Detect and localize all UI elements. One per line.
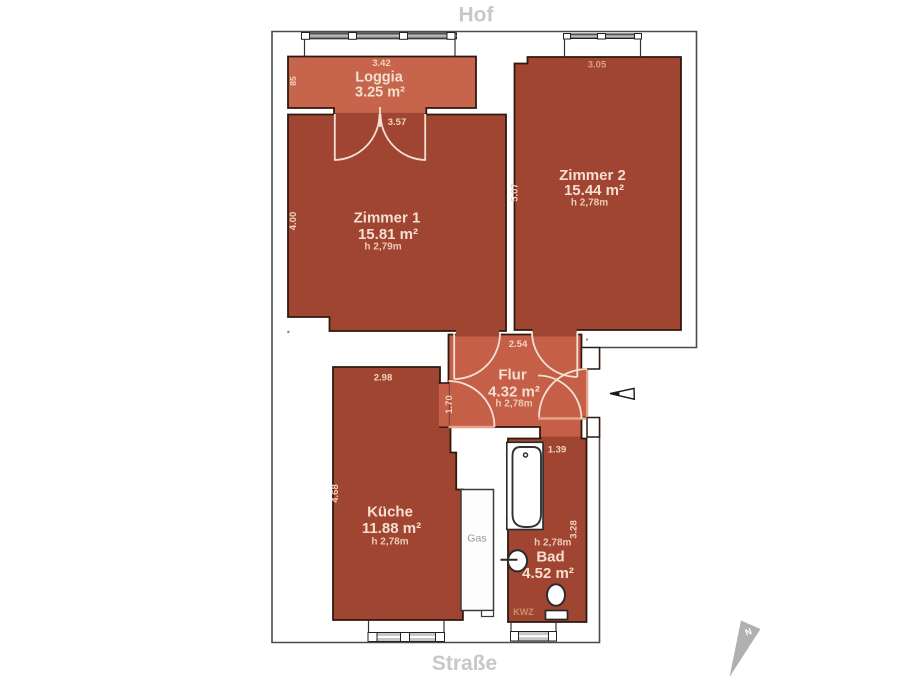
svg-text:2.98: 2.98 [374,373,393,384]
svg-text:15.44 m²: 15.44 m² [564,182,624,199]
svg-text:1.70: 1.70 [444,395,455,414]
svg-text:Gas: Gas [467,533,486,545]
svg-text:h 2,79m: h 2,79m [364,242,401,253]
svg-text:Küche: Küche [367,504,413,521]
svg-text:2.54: 2.54 [509,339,528,350]
svg-text:15.81 m²: 15.81 m² [358,226,418,243]
svg-text:11.88 m²: 11.88 m² [362,520,421,537]
svg-text:3.05: 3.05 [588,60,607,71]
svg-text:Flur: Flur [498,367,526,384]
svg-text:3.28: 3.28 [569,520,580,539]
svg-text:4.68: 4.68 [330,484,341,503]
svg-text:1.39: 1.39 [548,445,567,456]
svg-text:4.52 m²: 4.52 m² [522,565,574,582]
svg-text:Bad: Bad [536,549,564,566]
svg-text:3.57: 3.57 [388,117,407,128]
svg-text:Hof: Hof [459,4,495,27]
svg-text:4.00: 4.00 [288,212,299,231]
svg-text:Loggia: Loggia [355,70,403,86]
svg-text:85: 85 [288,76,298,86]
svg-text:h 2,78m: h 2,78m [571,198,608,209]
svg-text:h 2,78m: h 2,78m [371,537,408,548]
svg-text:h 2,78m: h 2,78m [495,399,532,410]
svg-text:5.07: 5.07 [510,183,521,202]
svg-text:h 2,78m: h 2,78m [534,538,571,549]
svg-text:Straße: Straße [432,652,497,675]
svg-text:KWZ: KWZ [513,607,534,617]
svg-text:3.42: 3.42 [372,58,391,69]
svg-text:3.25 m²: 3.25 m² [355,85,405,101]
svg-text:Zimmer 1: Zimmer 1 [354,210,421,227]
